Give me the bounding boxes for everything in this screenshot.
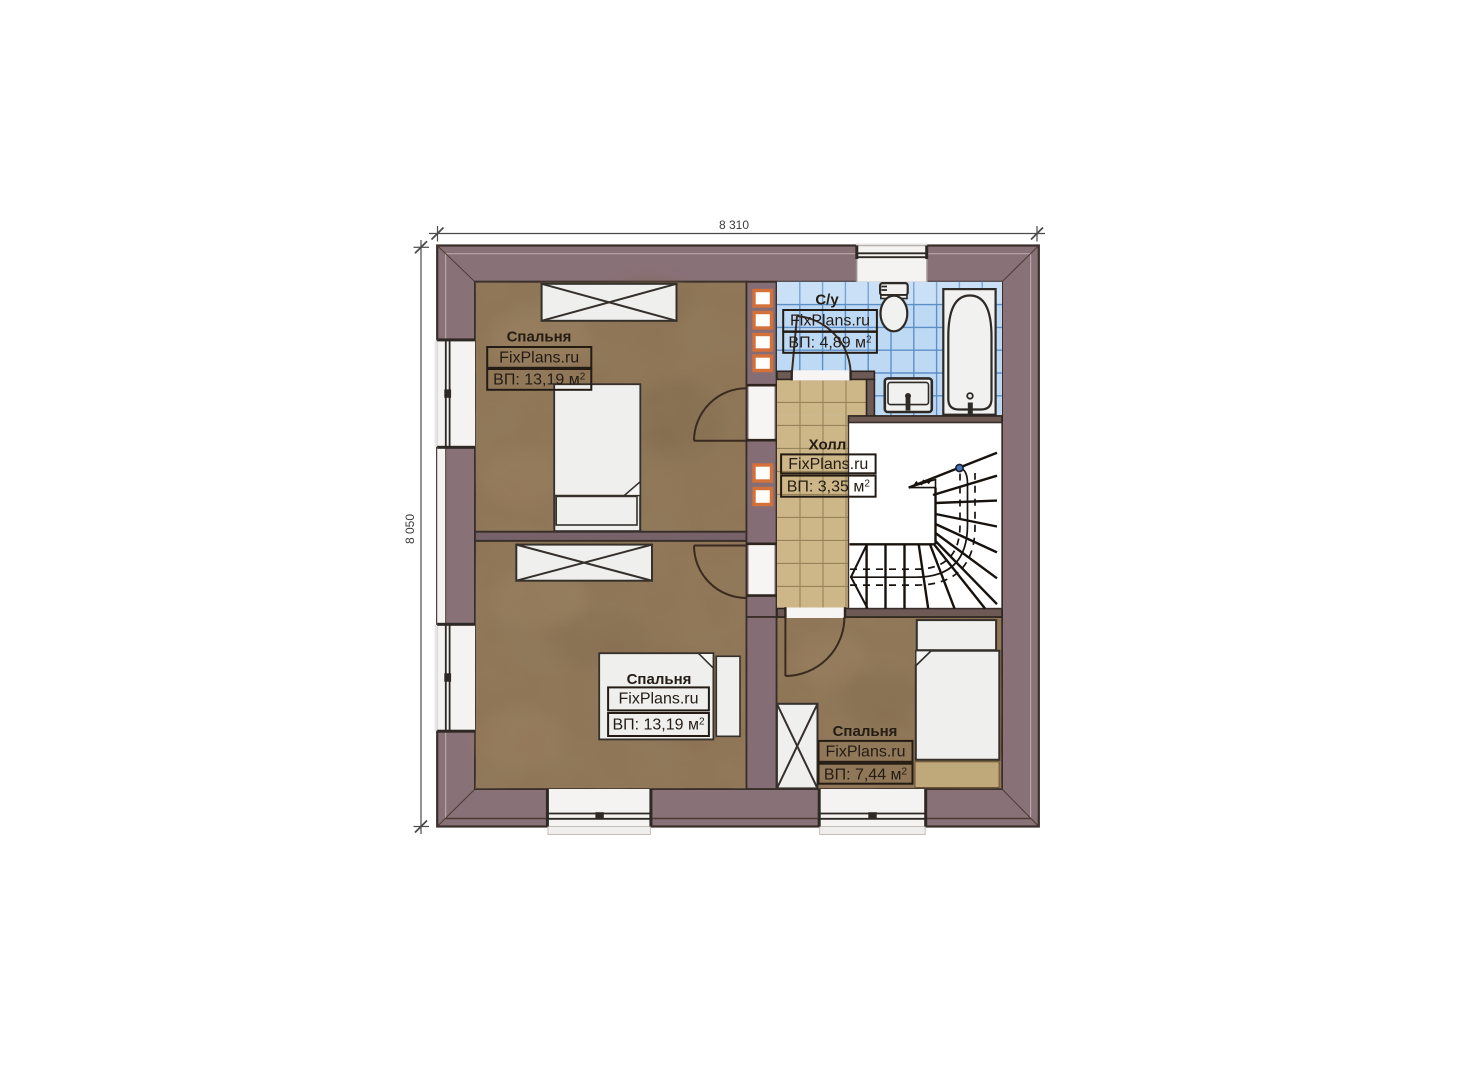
svg-text:Спальня: Спальня [507,329,572,346]
svg-text:С/у: С/у [815,292,839,309]
svg-text:8 050: 8 050 [403,514,417,544]
svg-text:FixPlans.ru: FixPlans.ru [618,691,698,708]
svg-text:Холл: Холл [809,437,847,454]
svg-text:ВП: 4,89 м2: ВП: 4,89 м2 [788,335,872,352]
svg-text:FixPlans.ru: FixPlans.ru [790,313,870,330]
svg-text:ВП: 13,19 м2: ВП: 13,19 м2 [612,717,705,734]
svg-text:FixPlans.ru: FixPlans.ru [499,350,579,367]
svg-text:Спальня: Спальня [833,723,898,740]
svg-text:ВП: 3,35 м2: ВП: 3,35 м2 [787,479,871,496]
svg-text:ВП: 7,44 м2: ВП: 7,44 м2 [824,767,908,784]
svg-text:8 310: 8 310 [719,218,749,232]
svg-text:ВП: 13,19 м2: ВП: 13,19 м2 [493,372,586,389]
svg-text:Спальня: Спальня [627,671,692,688]
svg-text:FixPlans.ru: FixPlans.ru [788,456,868,473]
svg-text:FixPlans.ru: FixPlans.ru [825,744,905,761]
